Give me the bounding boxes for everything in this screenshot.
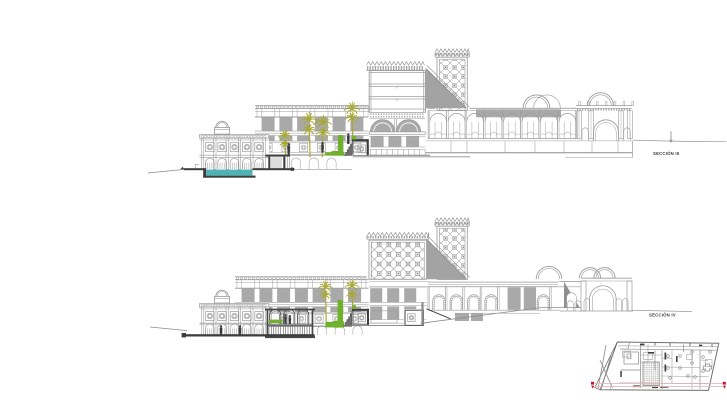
svg-text:SECCIÓN III: SECCIÓN III bbox=[653, 151, 680, 156]
svg-text:SECCIÓN IV: SECCIÓN IV bbox=[649, 313, 676, 318]
